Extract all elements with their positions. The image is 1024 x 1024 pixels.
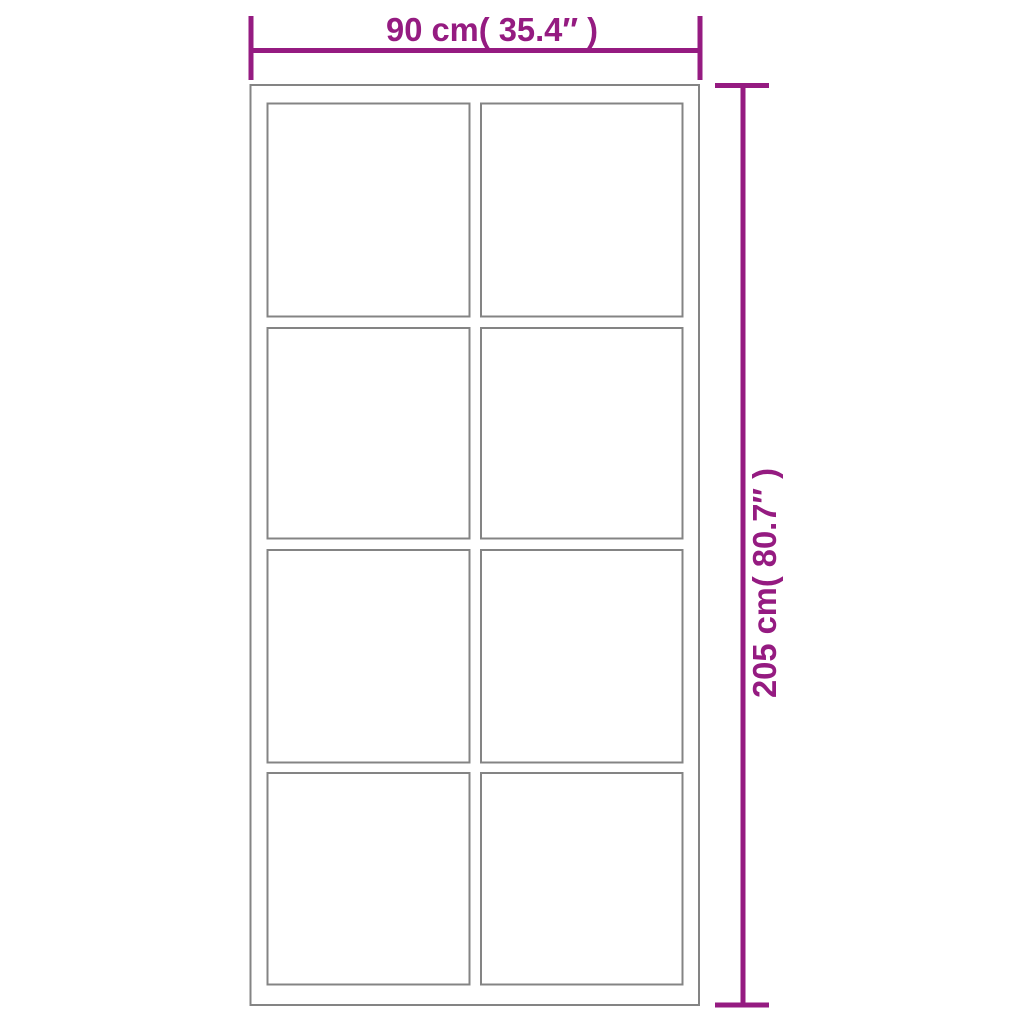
svg-text:90 cm( 35.4″ ): 90 cm( 35.4″ ): [386, 11, 598, 48]
svg-text:205 cm( 80.7″ ): 205 cm( 80.7″ ): [746, 468, 783, 698]
